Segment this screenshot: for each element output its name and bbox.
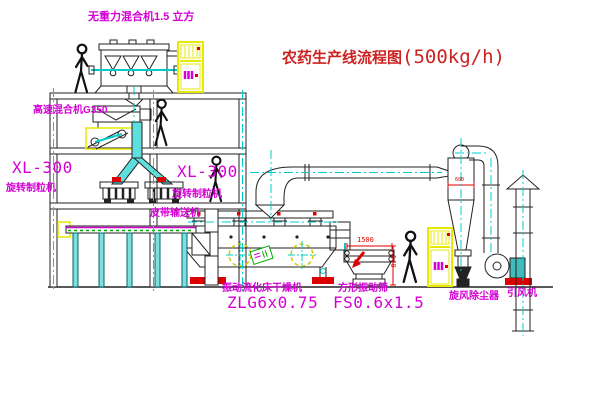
worker-figure-ground <box>404 232 417 282</box>
label-belt-conveyor: 皮带输送机 <box>150 209 200 219</box>
label-granulator-right-name: 旋转制粒机 <box>172 190 222 200</box>
label-gravity-mixer: 无重力混合机1.5 立方 <box>88 12 194 23</box>
floor-slab-top <box>50 93 246 99</box>
label-screen-model: FS0.6x1.5 <box>333 295 424 311</box>
dim-screen-height: 540 <box>389 255 396 268</box>
label-high-speed-mixer: 高速混合机G350 <box>33 106 107 116</box>
belt-conveyor <box>58 222 210 287</box>
rotary-granulator-left <box>100 177 138 203</box>
label-fan: 引风机 <box>507 289 537 299</box>
label-granulator-left-model: XL-300 <box>12 160 73 176</box>
worker-figure-top-floor <box>76 45 88 92</box>
label-granulator-right-model: XL-300 <box>177 164 238 180</box>
floor-slab-low <box>50 203 246 209</box>
label-granulator-left-name: 旋转制粒机 <box>6 184 56 194</box>
watermark-logo <box>250 246 273 265</box>
control-cabinet-2 <box>428 228 452 286</box>
dim-cyclone-diameter: 600 <box>455 178 464 183</box>
vibrating-screen <box>344 243 394 285</box>
induced-draft-fan <box>485 254 532 285</box>
title-text: 农药生产线流程图 <box>282 50 402 67</box>
process-flow-diagram: 农药生产线流程图(500kg/h) 无重力混合机1.5 立方 高速混合机G350… <box>0 0 600 403</box>
title-capacity: (500kg/h) <box>402 46 505 68</box>
screw-feeder <box>86 128 134 149</box>
control-cabinet-1 <box>178 42 203 92</box>
label-cyclone: 旋风除尘器 <box>449 292 499 302</box>
diagram-title: 农药生产线流程图(500kg/h) <box>282 46 505 68</box>
floor-slab-mid <box>50 148 246 154</box>
label-dryer-model: ZLG6x0.75 <box>227 295 318 311</box>
dim-screen-length: 1500 <box>357 237 374 244</box>
